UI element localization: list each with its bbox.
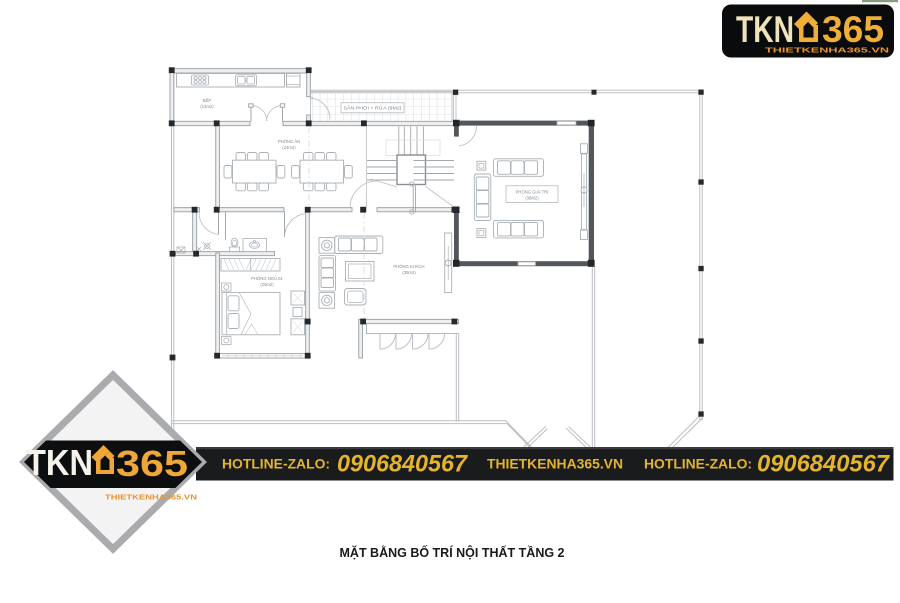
svg-text:TKN: TKN [26, 442, 93, 483]
svg-text:0906840567: 0906840567 [337, 451, 469, 478]
svg-text:(20m2): (20m2) [260, 282, 274, 287]
svg-text:HOTLINE-ZALO:: HOTLINE-ZALO: [644, 457, 752, 472]
svg-text:(14m2): (14m2) [200, 104, 214, 109]
svg-text:(35m2): (35m2) [402, 270, 416, 275]
svg-text:THIETKENHA365.VN: THIETKENHA365.VN [765, 48, 889, 55]
svg-text:THIETKENHA365.VN: THIETKENHA365.VN [105, 495, 197, 502]
svg-text:MẶT BẰNG BỐ TRÍ NỘI THẤT TẦNG: MẶT BẰNG BỐ TRÍ NỘI THẤT TẦNG 2 [340, 545, 565, 560]
svg-text:0906840567: 0906840567 [757, 451, 891, 478]
svg-text:BẾP: BẾP [203, 98, 212, 103]
svg-text:365: 365 [822, 9, 884, 50]
svg-text:PHÒNG ĂN: PHÒNG ĂN [278, 139, 300, 144]
svg-text:PHÒNG KHÁCH: PHÒNG KHÁCH [393, 264, 424, 269]
svg-text:(36M2): (36M2) [525, 196, 539, 201]
svg-text:THIETKENHA365.VN: THIETKENHA365.VN [487, 457, 623, 472]
svg-text:365: 365 [116, 443, 188, 484]
svg-text:TKN: TKN [736, 9, 794, 50]
svg-text:PHÒNG GIẢI TRÍ: PHÒNG GIẢI TRÍ [516, 190, 550, 195]
svg-text:(24m2): (24m2) [282, 145, 296, 150]
svg-text:SÂN PHƠI + RỬA (9M2): SÂN PHƠI + RỬA (9M2) [344, 106, 403, 111]
svg-text:PHÒNG NGỦ 01: PHÒNG NGỦ 01 [251, 276, 283, 281]
svg-text:HOTLINE-ZALO:: HOTLINE-ZALO: [222, 457, 330, 472]
